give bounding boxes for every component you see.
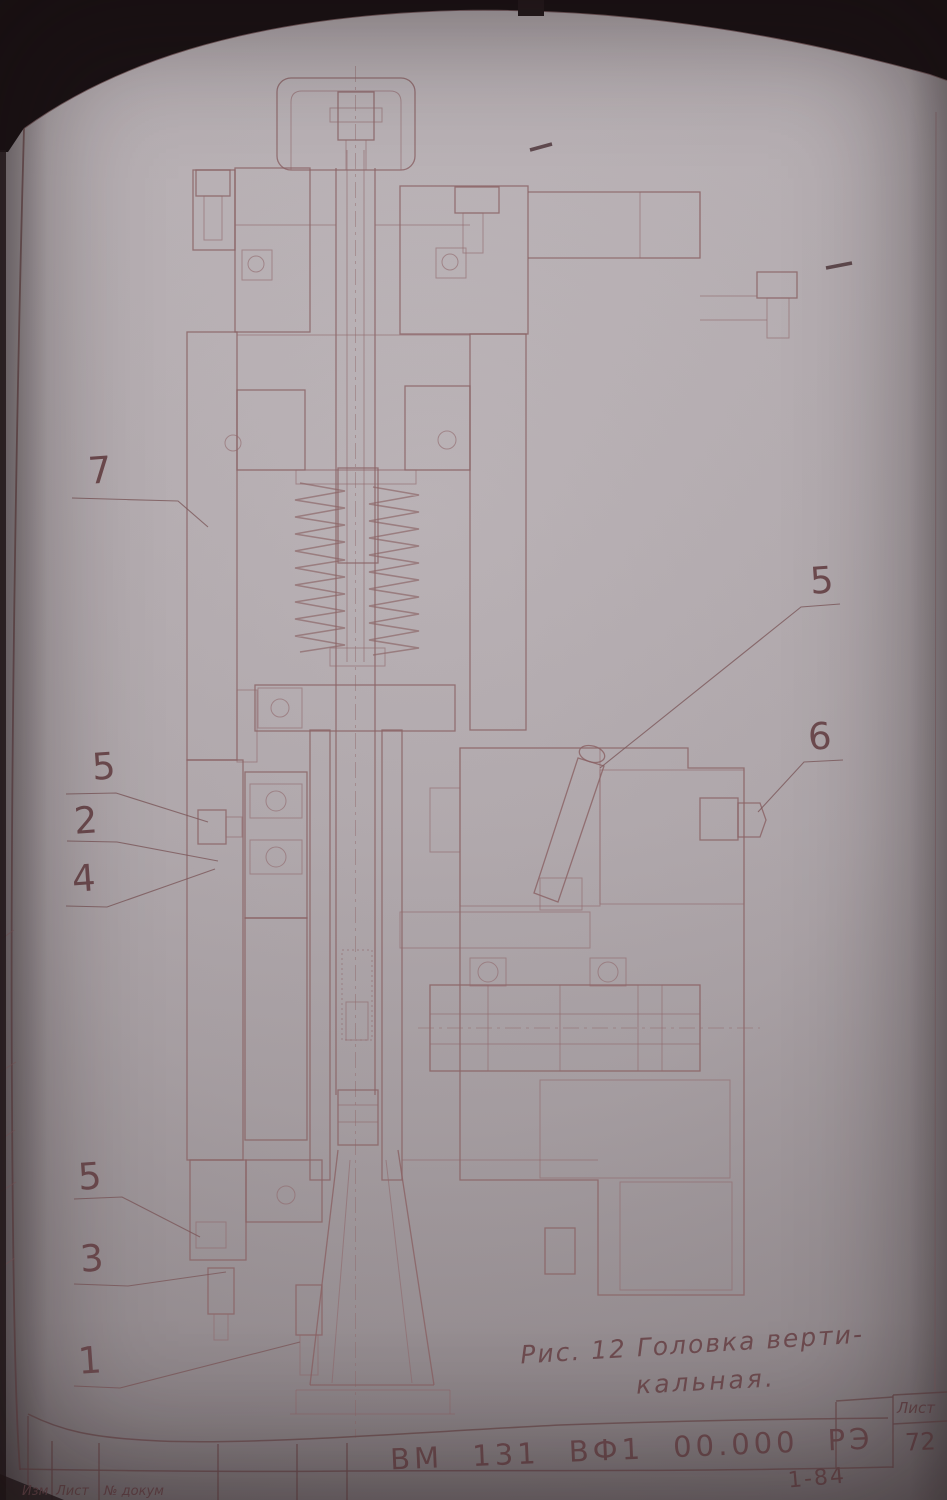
callout-2: 2: [73, 801, 100, 840]
section-mid-flange: [237, 685, 455, 762]
ink-marks: [530, 144, 852, 268]
section-central-shaft: [336, 66, 375, 1438]
callout-leader-lines: [66, 498, 843, 1388]
section-spindle-nose: [190, 1150, 598, 1414]
callout-3: 3: [79, 1239, 106, 1278]
section-lower-left-housing: [187, 760, 307, 1160]
section-spring: [295, 468, 419, 666]
edition-mark: 1-84: [787, 1464, 847, 1494]
callout-5-right: 5: [809, 561, 836, 600]
page-frame: [0, 10, 947, 1470]
callout-5-bottom: 5: [77, 1157, 104, 1196]
callout-7: 7: [87, 451, 114, 490]
section-top-cap: [277, 78, 415, 170]
revision-col-list: Лист: [56, 1484, 89, 1499]
revision-col-ndoc: № докум: [104, 1484, 164, 1499]
section-spindle-lower: [277, 730, 402, 1204]
sheet-number: 72: [904, 1427, 936, 1457]
sheet-label: Лист: [897, 1399, 935, 1417]
photo-dark-edges: [0, 0, 947, 1500]
engineering-drawing: [0, 0, 947, 1500]
callout-4: 4: [71, 859, 98, 898]
callout-1: 1: [77, 1341, 104, 1380]
revision-col-izm: Изм: [22, 1484, 48, 1499]
callout-6: 6: [807, 717, 834, 756]
callout-5-left: 5: [91, 747, 118, 786]
scanned-page: 7 5 2 4 5 6 5 3 1 Рис. 12 Головка верти-…: [0, 0, 947, 1500]
section-upper-housing: [187, 168, 797, 760]
section-right-gear-housing: [400, 743, 766, 1295]
